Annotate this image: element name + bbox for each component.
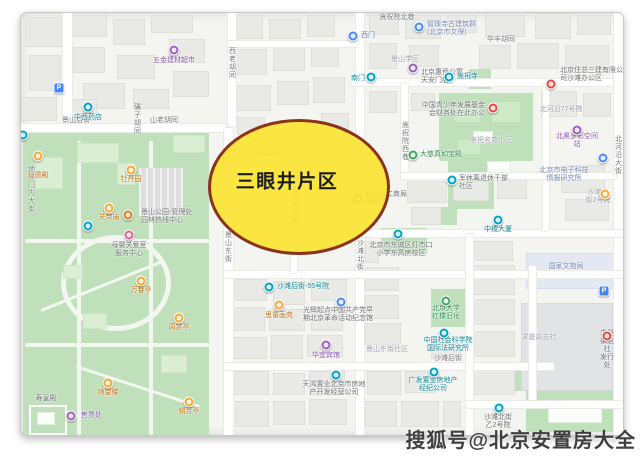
poi-label: 万春亭 bbox=[131, 287, 152, 295]
poi-label: 母婴关爱室 服务中心 bbox=[112, 242, 147, 258]
poi-label: 南门 bbox=[351, 75, 365, 83]
heritage-pin[interactable] bbox=[441, 296, 452, 307]
building bbox=[173, 71, 209, 97]
poi-label: 北京住总三建有限公 司沙滩办公区 bbox=[560, 67, 623, 83]
area-label: 嵩祝名苑小区 bbox=[470, 137, 512, 145]
gate-pin[interactable] bbox=[348, 31, 359, 42]
area-label: 北河沿77号院 bbox=[540, 106, 583, 114]
pavilion-pin[interactable] bbox=[174, 313, 185, 324]
road bbox=[224, 271, 623, 278]
hotel-pin[interactable] bbox=[321, 340, 332, 351]
pavilion-pin[interactable] bbox=[184, 397, 195, 408]
park-path bbox=[25, 343, 211, 347]
school-pin[interactable] bbox=[393, 229, 404, 240]
street-label: 嵩祝院北巷 bbox=[380, 14, 415, 22]
institute-pin[interactable] bbox=[439, 328, 450, 339]
map-photo-frame[interactable]: 地安门内大街碾子胡同西老胡同景山后街山老胡同景山东街沙滩北街吉安所左巷嵩祝院西巷… bbox=[20, 12, 624, 436]
road bbox=[228, 41, 358, 47]
building bbox=[583, 93, 611, 117]
park-building bbox=[83, 313, 107, 329]
building bbox=[471, 241, 513, 261]
poi-label: 华宜宾馆 bbox=[312, 352, 340, 360]
park-office-pin[interactable] bbox=[123, 210, 134, 221]
poi-label: 中稷大厦 bbox=[484, 226, 512, 234]
street-label: 沙滩北街 bbox=[357, 239, 364, 271]
building bbox=[71, 15, 107, 37]
street-label: 碾子胡同 bbox=[134, 103, 141, 135]
shop-pin[interactable] bbox=[169, 45, 180, 56]
community-pin[interactable] bbox=[447, 175, 458, 186]
company-pin[interactable] bbox=[331, 370, 342, 381]
company-pin[interactable] bbox=[429, 367, 440, 378]
building bbox=[25, 17, 65, 47]
street-label: 景山东街 bbox=[225, 231, 232, 263]
article-image: 地安门内大街碾子胡同西老胡同景山后街山老胡同景山东街沙滩北街吉安所左巷嵩祝院西巷… bbox=[0, 0, 640, 456]
building bbox=[577, 15, 611, 35]
building bbox=[277, 81, 309, 105]
poi-label: 西门 bbox=[361, 32, 375, 40]
poi-label: 周赏亭 bbox=[169, 324, 190, 332]
gate-pin[interactable] bbox=[366, 72, 377, 83]
hall-pin[interactable] bbox=[408, 150, 419, 161]
poi-pin[interactable] bbox=[600, 189, 611, 200]
building bbox=[311, 45, 339, 67]
gate-pin[interactable] bbox=[83, 221, 94, 232]
park-building bbox=[63, 265, 83, 279]
building bbox=[233, 337, 267, 359]
hotel-pin[interactable] bbox=[408, 63, 419, 74]
poi-label: 军休离退休干部 社区 bbox=[459, 175, 508, 191]
park-poi-pin[interactable] bbox=[126, 165, 137, 176]
poi-label: 北京大学 红楼旧址 bbox=[432, 305, 460, 321]
street-label: 北河沿大街 bbox=[615, 135, 622, 175]
building bbox=[235, 15, 263, 39]
temple-pin[interactable] bbox=[444, 72, 455, 83]
park-poi-pin[interactable] bbox=[104, 203, 115, 214]
road bbox=[21, 124, 226, 132]
museum-pin[interactable] bbox=[336, 297, 347, 308]
building bbox=[233, 279, 267, 301]
building bbox=[233, 371, 269, 395]
building bbox=[471, 265, 515, 295]
pharmacy-pin[interactable] bbox=[83, 102, 94, 113]
park-building bbox=[77, 143, 119, 163]
poi-label: 观德殿 bbox=[28, 172, 49, 180]
palace-hall bbox=[37, 412, 55, 425]
office-pin[interactable] bbox=[602, 331, 613, 342]
park-building bbox=[173, 135, 205, 153]
building bbox=[407, 181, 447, 203]
building bbox=[485, 15, 525, 37]
street-label: 沙滩后街 bbox=[434, 355, 462, 363]
poi-pin[interactable] bbox=[572, 125, 583, 136]
building bbox=[473, 369, 515, 395]
poi-label: 北京市东城区灯市口 小学东高房校区 bbox=[370, 242, 433, 258]
building bbox=[307, 15, 335, 37]
building-pin[interactable] bbox=[493, 215, 504, 226]
poi-label: 思童画苑 bbox=[265, 312, 293, 320]
building bbox=[269, 19, 301, 39]
street-label: 西老胡同 bbox=[229, 47, 236, 79]
watermark-text: 搜狐号@北京安置房大全 bbox=[405, 430, 636, 452]
area-label: 景山东街社区 bbox=[366, 346, 408, 354]
poi-label: 嵩祝寺 bbox=[457, 73, 478, 81]
building bbox=[235, 49, 267, 75]
poi-label: 大慈真如宝殿 bbox=[420, 151, 462, 159]
poi-label: 寿皇殿 bbox=[36, 395, 57, 403]
poi-label: 北京市电子科技 情报研究所 bbox=[540, 167, 589, 183]
road bbox=[63, 13, 72, 126]
poi-label: 绮望楼 bbox=[98, 389, 119, 397]
building bbox=[479, 45, 511, 69]
poi-label: 售票处 bbox=[81, 412, 102, 420]
building bbox=[309, 399, 347, 425]
building bbox=[113, 19, 145, 45]
pavilion-pin[interactable] bbox=[103, 378, 114, 389]
building bbox=[235, 401, 269, 427]
area-label: 求是杂志社 bbox=[522, 334, 557, 342]
building bbox=[117, 55, 155, 79]
parking-pin[interactable]: P bbox=[54, 83, 65, 94]
poi-label: 景山公园-管理处 园林热线中心 bbox=[141, 209, 192, 225]
poi-label: 沙滩后街-55号院 bbox=[277, 283, 329, 291]
building bbox=[271, 335, 303, 359]
office-pin[interactable] bbox=[546, 79, 557, 90]
building bbox=[471, 331, 515, 357]
building bbox=[21, 97, 57, 121]
road bbox=[466, 401, 623, 408]
parking-pin[interactable]: P bbox=[599, 286, 610, 297]
poi-label: 广发置业房地产 经纪公司 bbox=[409, 377, 458, 393]
building bbox=[367, 371, 401, 395]
watermark: 搜狐号@北京安置房大全 bbox=[405, 424, 636, 453]
building bbox=[411, 207, 441, 225]
poi-label: 智珠寺古建筑群 (北京市文保) bbox=[427, 21, 476, 37]
building bbox=[151, 15, 193, 33]
art-pin[interactable] bbox=[274, 300, 285, 311]
poi-label: 国家文物局 bbox=[549, 263, 584, 271]
poi-label: 牡丹园 bbox=[121, 176, 142, 184]
building bbox=[365, 323, 401, 345]
building bbox=[535, 13, 571, 39]
poi-label: 光辉起点中国共产党早 期北京革命活动纪念馆 bbox=[303, 307, 373, 323]
poi-pin[interactable] bbox=[598, 153, 609, 164]
office-pin[interactable] bbox=[488, 103, 499, 114]
building bbox=[273, 373, 305, 395]
building bbox=[369, 91, 397, 113]
building bbox=[73, 47, 105, 73]
temple-pin[interactable] bbox=[414, 22, 425, 33]
building bbox=[471, 299, 515, 325]
ticket-pin[interactable] bbox=[66, 411, 77, 422]
courtyard-pin[interactable] bbox=[494, 403, 505, 414]
park-building bbox=[161, 355, 187, 373]
building bbox=[235, 85, 271, 111]
street-label: 华丰胡同 bbox=[487, 36, 515, 44]
building bbox=[517, 43, 559, 69]
building bbox=[273, 401, 305, 425]
poi-label: 中西药店 bbox=[74, 114, 102, 122]
poi-label: 关帝庙 bbox=[99, 214, 120, 222]
street-label: 山老胡同 bbox=[150, 117, 178, 125]
building bbox=[273, 47, 305, 71]
highlight-label: 三眼井片区 bbox=[236, 167, 339, 194]
poi-label: 中国青少年发展基金 会财务处在此办公 bbox=[422, 102, 485, 118]
poi-label: 中国社会科学院 国际法研究所 bbox=[424, 337, 473, 353]
poi-label: 天鸿置业北京市房地 产开发经营公司 bbox=[303, 381, 366, 397]
building bbox=[233, 307, 265, 331]
poi-label: 五金建材超市 bbox=[153, 57, 195, 65]
park-poi-pin[interactable] bbox=[33, 151, 44, 162]
pavilion-pin[interactable] bbox=[136, 276, 147, 287]
courtyard-pin[interactable] bbox=[264, 282, 275, 293]
poi-label: 辑芳亭 bbox=[179, 408, 200, 416]
road bbox=[224, 363, 554, 370]
building bbox=[365, 401, 397, 427]
building bbox=[313, 77, 345, 103]
service-pin[interactable] bbox=[124, 230, 135, 241]
